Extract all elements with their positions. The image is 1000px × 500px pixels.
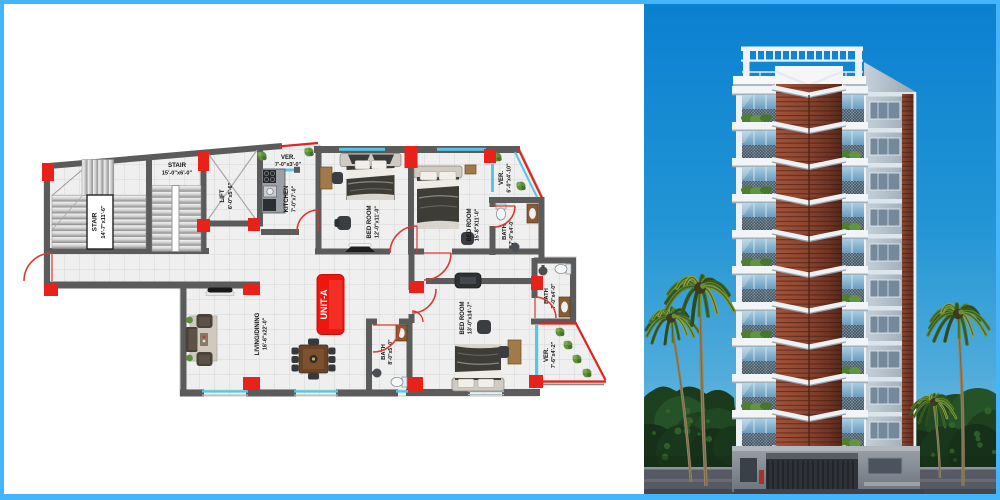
svg-text:BED ROOM: BED ROOM (467, 208, 473, 241)
svg-text:16'-6"x22'-0": 16'-6"x22'-0" (263, 317, 269, 350)
svg-text:12'-0"x11'-0": 12'-0"x11'-0" (375, 206, 381, 238)
svg-text:13'-0"x14'-7": 13'-0"x14'-7" (468, 301, 474, 334)
svg-text:VER.: VER. (281, 155, 295, 161)
svg-text:BED ROOM: BED ROOM (460, 301, 466, 334)
svg-text:7'-0"x4'-0": 7'-0"x4'-0" (509, 219, 515, 245)
svg-text:7'-0"x3'-0": 7'-0"x3'-0" (275, 162, 302, 168)
svg-text:7'-0"x7'-0": 7'-0"x7'-0" (292, 185, 298, 212)
svg-text:LIFT: LIFT (219, 189, 226, 202)
svg-text:6'-0"x5'-6": 6'-0"x5'-6" (228, 182, 234, 209)
svg-text:15'-8"X11'-0": 15'-8"X11'-0" (475, 208, 481, 241)
svg-text:VER.: VER. (499, 171, 505, 185)
svg-text:BATH: BATH (502, 224, 508, 240)
svg-text:VER.: VER. (544, 348, 550, 362)
svg-text:LIVING/DINING: LIVING/DINING (255, 312, 261, 355)
svg-text:14'-7"x11'-6": 14'-7"x11'-6" (101, 205, 107, 239)
svg-text:KITCHEN: KITCHEN (284, 186, 290, 213)
svg-text:6'-0"x4'-10": 6'-0"x4'-10" (507, 163, 513, 193)
svg-text:UNIT-A: UNIT-A (319, 289, 329, 319)
svg-text:STAIR: STAIR (168, 162, 187, 169)
svg-text:BED ROOM: BED ROOM (367, 205, 373, 238)
svg-text:15'-0"x6'-0": 15'-0"x6'-0" (162, 171, 193, 177)
svg-text:7'-6"x4'-2": 7'-6"x4'-2" (551, 341, 557, 368)
svg-text:STAIR: STAIR (92, 212, 99, 231)
svg-text:BATH: BATH (381, 344, 387, 360)
